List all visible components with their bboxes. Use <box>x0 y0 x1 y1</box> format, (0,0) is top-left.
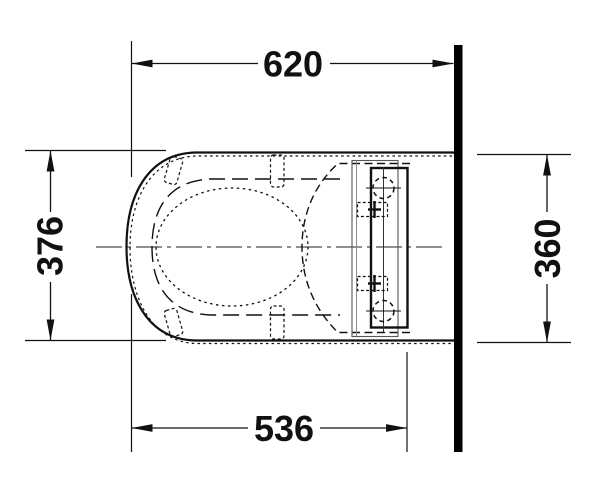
arrow-376-top <box>47 151 55 172</box>
arrow-360-bottom <box>543 322 551 343</box>
arrow-620-left <box>132 60 153 68</box>
dimension-bottom-536: 536 <box>132 294 408 452</box>
dimension-360-label: 360 <box>527 218 568 278</box>
wall-bar <box>454 45 463 452</box>
arrow-536-left <box>132 424 153 432</box>
wall <box>454 45 463 452</box>
dimension-536-label: 536 <box>254 408 314 449</box>
bumper-mid-top <box>271 155 285 187</box>
dimension-376-label: 376 <box>30 216 71 276</box>
arrow-360-top <box>543 155 551 176</box>
toilet-body <box>127 153 455 344</box>
drawing-canvas: 620 376 360 536 <box>0 0 600 501</box>
arrow-620-right <box>433 60 454 68</box>
mounting-plate <box>352 161 408 337</box>
mounting-plate-outer <box>352 161 398 337</box>
drawing-sheet: 620 376 360 536 <box>0 0 600 501</box>
dimension-620-label: 620 <box>263 44 323 85</box>
arrow-376-bottom <box>47 320 55 341</box>
bumper-mid-bottom <box>271 306 285 339</box>
arrow-536-right <box>386 424 407 432</box>
dimension-right-360: 360 <box>477 155 571 343</box>
